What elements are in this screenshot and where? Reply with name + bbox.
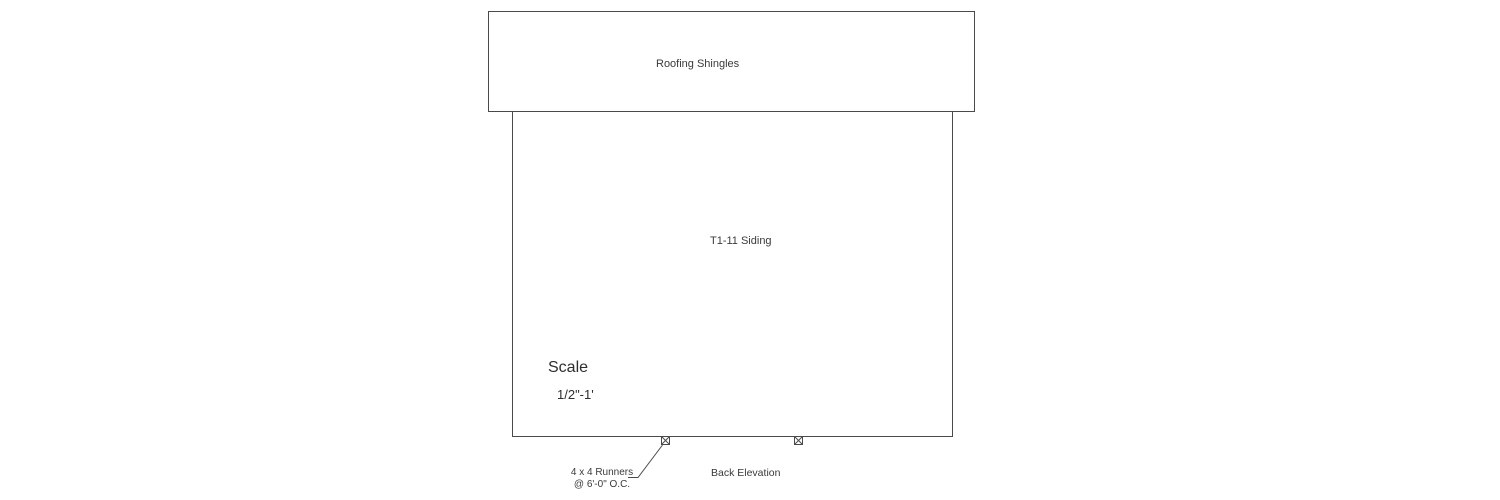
scale-value: 1/2"-1'	[557, 387, 594, 402]
siding-label: T1-11 Siding	[710, 235, 772, 247]
runners-note: 4 x 4 Runners @ 6'-0" O.C.	[566, 467, 638, 491]
roof-label: Roofing Shingles	[656, 58, 739, 70]
runner-marker-icon	[662, 437, 670, 445]
runners-note-line1: 4 x 4 Runners	[566, 467, 638, 479]
runners-note-line2: @ 6'-0" O.C.	[566, 479, 638, 491]
runner-marker-icon	[795, 437, 803, 445]
drawing-canvas: Roofing Shingles T1-11 Siding Scale 1/2"…	[0, 0, 1500, 500]
scale-heading: Scale	[548, 359, 588, 377]
drawing-caption: Back Elevation	[711, 467, 780, 479]
